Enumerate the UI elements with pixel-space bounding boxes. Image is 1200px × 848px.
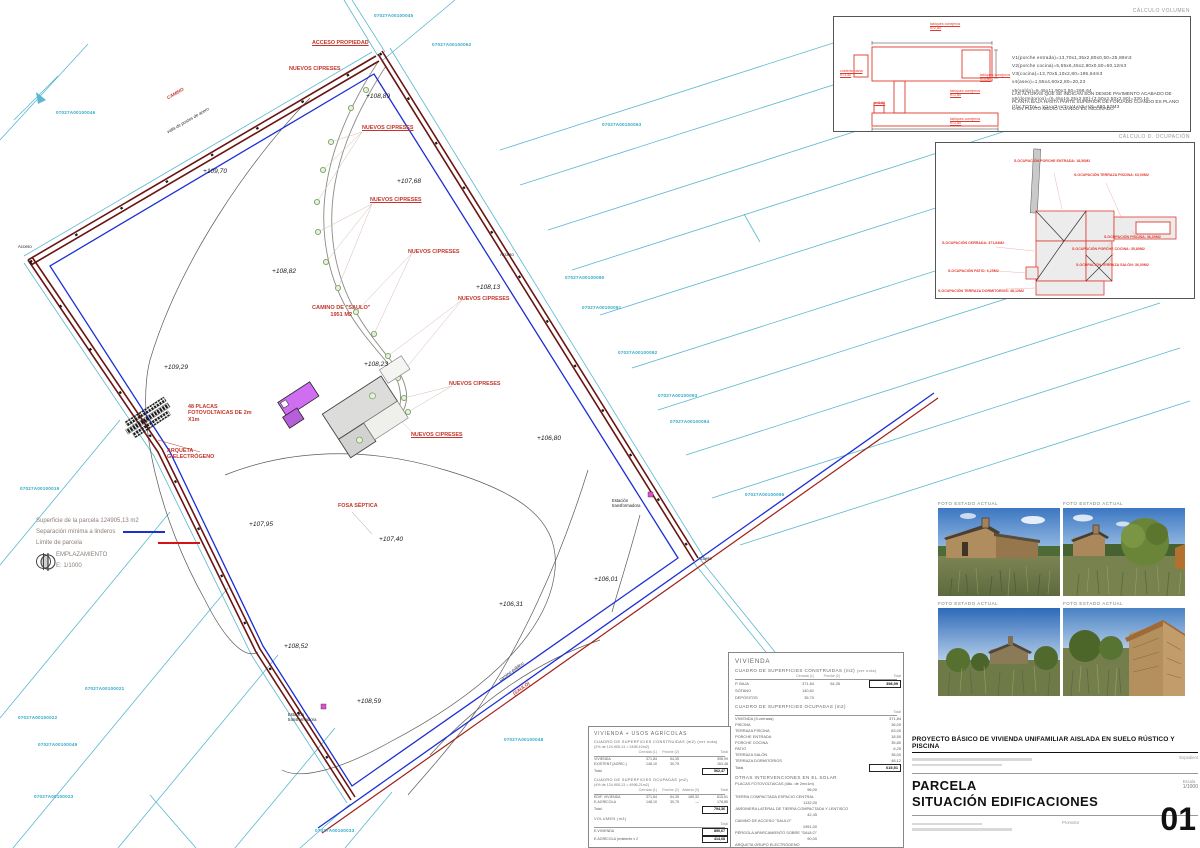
plan-label: CAMINO (166, 87, 185, 101)
mixta-s1-sub: (2% de 124.905,13 = 2498,10m2) (594, 745, 725, 749)
plan-label: FOSA SÉPTICA (338, 503, 378, 509)
plan-label: +109,70 (203, 168, 227, 176)
ocupacion-box-title: CÁLCULO D. OCUPACIÓN (1030, 134, 1190, 140)
expedient-label: Expedient (1179, 755, 1198, 760)
north-section-icon (36, 554, 51, 569)
vivienda-table: VIVIENDA CUADRO DE SUPERFICIES CONSTRUID… (728, 652, 904, 848)
table-row: P. BAJA371,84 54,35 398,99< 1873,57 m2 (735, 680, 897, 688)
limit-label: Límite de parcela (36, 538, 82, 549)
emplazamiento-scale: E: 1/1000 (56, 563, 82, 569)
sheet-name-line1: PARCELA (912, 778, 1098, 794)
occupied-section-title: CUADRO DE SUPERFICIES OCUPADAS (m2) (735, 704, 897, 709)
table-row: Total 794,36< 4996,21 m2 (594, 806, 725, 814)
plan-label: +108,59 (357, 698, 381, 706)
volumen-box-title: CÁLCULO VOLUMEN (1030, 8, 1190, 14)
ocupacion-box: S.OCUPACIÓN PORCHE ENTRADA: 18,50M2S.OCU… (935, 142, 1195, 299)
separation-line-swatch (123, 531, 165, 533)
photo-field-house (938, 608, 1060, 696)
plan-label: NUEVOS CIPRESES (458, 296, 510, 302)
plan-label: valla de postes de acero (166, 106, 210, 134)
plan-label: 48 PLACAS FOTOVOLTAICAS DE 2m X1m (188, 404, 252, 423)
plan-label: 07027A00100022 (18, 715, 57, 721)
table-row: PÉRGOLA APARCAMIENTO SOBRE "SAULO" 90,00 (735, 830, 897, 842)
volumen-diagram-label: tabiques conejeros h=2,80 (950, 89, 980, 98)
ocupacion-label: S.OCUPACIÓN PORCHE COCINA: 35,80M2 (1072, 247, 1145, 251)
table-row: CAMINO DE ACCESO "SAULO" 1951,00 (735, 818, 897, 830)
plan-label: 07027A00100093 (658, 393, 697, 399)
scale-value: 1/1000 (1183, 784, 1198, 790)
table-row: DEPÓSITOS35,70 (735, 695, 897, 701)
legend: Superficie de la parcela 124905,13 m2 Se… (36, 516, 200, 572)
plan-label: Acceso (500, 252, 514, 257)
volumen-calc-line: V2(porche cocina)=5,55x6,45x2,80x0,50=50… (1012, 62, 1149, 70)
photo-farmhouse-tree (1063, 508, 1185, 596)
ocupacion-label: S.OCUPACIÓN PISCINA: 36,00M2 (1104, 235, 1161, 239)
ocupacion-diagram (936, 143, 1194, 298)
plan-label: +106,01 (594, 576, 618, 584)
divider (912, 773, 1198, 774)
plan-label: +109,29 (164, 364, 188, 372)
drawing-sheet: 07027A0010004507027A0010006207027A001000… (0, 0, 1200, 848)
table-row: Total 562,47< 2498,10 m2 (594, 768, 725, 776)
plan-label: 07027A00100045 (374, 13, 413, 19)
plan-label: NUEVOS CIPRESES (408, 249, 460, 255)
other-works-section-title: OTRAS INTERVENCIONES EN EL SOLAR (735, 775, 897, 780)
mixta-table: VIVIENDA + USOS AGRÍCOLAS CUADRO DE SUPE… (588, 726, 731, 848)
promotor-label: Promotor (1062, 820, 1079, 825)
table-row: PLACAS FOTOVOLTAICAS (48u. de 2mx1m) 96,… (735, 781, 897, 793)
mixta-table-title: VIVIENDA + USOS AGRÍCOLAS (594, 731, 725, 737)
plan-label: +108,82 (272, 268, 296, 276)
plan-label: 07027A00100094 (670, 419, 709, 425)
mixta-s3-title: VOLUMEN (m3) (594, 817, 725, 821)
parcel-area-text: Superficie de la parcela 124905,13 m2 (36, 516, 200, 527)
plan-label: NUEVOS CIPRESES (362, 125, 414, 131)
plan-label: 07027A00100090 (565, 275, 604, 281)
plan-label: +107,95 (249, 521, 273, 529)
sheet-name-line2: SITUACIÓN EDIFICACIONES (912, 794, 1098, 810)
architect-info-redacted (912, 758, 1032, 761)
volumen-diagram-label: h=3,50 (874, 101, 885, 105)
table-row: TIERRA COMPACTADA ESPACIO CENTRAL 1132,0… (735, 794, 897, 806)
photo-farmhouse (938, 508, 1060, 596)
plan-label: ARQUETA G.ELECTRÓGENO (167, 448, 214, 461)
plan-label: 07027A00100095 (745, 492, 784, 498)
volumen-box: tabiques conejeros h=2,80cubierta plana … (833, 16, 1191, 132)
mixta-s1-note: (ver nota) (697, 740, 717, 744)
volumen-note: LAS ALTURAS QUE SE INDICAN SON DESDE PAV… (1012, 90, 1180, 113)
plan-label: NUEVOS CIPRESES (449, 381, 501, 387)
mixta-s2-title: CUADRO DE SUPERFICIES OCUPADAS (m2) (594, 778, 725, 782)
plan-label: 07027A00100033 (315, 828, 354, 834)
plan-label: +107,40 (379, 536, 403, 544)
plan-label: CAMINO DE "SAULO" 1951 M2 (312, 305, 370, 318)
ocupacion-label: S.OCUPACIÓN TERRAZA DORMITORIOS: 48,12M2 (938, 289, 1024, 293)
table-row: Total 615,51< 4996,21 m2 (735, 764, 897, 772)
plan-label: 07027A00100046 (56, 110, 95, 116)
plan-label: 07027A00100021 (85, 686, 124, 692)
plan-label: ACCESO PROPIEDAD (312, 40, 369, 46)
volumen-calc-line: V3(cocina)=13,70x5,10x2,80=195,64m3 (1012, 70, 1149, 78)
title-block: PROYECTO BÁSICO DE VIVIENDA UNIFAMILIAR … (912, 736, 1198, 844)
photo-caption: FOTO ESTADO ACTUAL (938, 501, 998, 506)
plan-label: 07027A00100023 (34, 794, 73, 800)
ocupacion-label: S.OCUPACIÓN CERRADA: 371,84M2 (942, 241, 1004, 245)
project-title: PROYECTO BÁSICO DE VIVIENDA UNIFAMILIAR … (912, 736, 1198, 753)
plan-label: 07027A00100019 (20, 486, 59, 492)
photo-caption: FOTO ESTADO ACTUAL (1063, 501, 1123, 506)
plan-label: +107,68 (397, 178, 421, 186)
separation-label: Separación mínima a linderos (36, 527, 115, 538)
volumen-calc-line: v4(aseo)=1,55x4,60x2,80=20,23 (1012, 78, 1149, 86)
plan-label: NUEVOS CIPRESES (370, 197, 422, 203)
ocupacion-label: S.OCUPACIÓN PATIO: 6,25M2 (948, 269, 999, 273)
mixta-s2-sub: (4% de 124.905,13 = 4996,21m2) (594, 783, 725, 787)
plan-label: 07027A00100062 (432, 42, 471, 48)
volumen-diagram-label: tabiques conejeros h=2,80 (950, 117, 980, 126)
plan-label: 07027A00100091 (582, 305, 621, 311)
divider (912, 815, 1198, 816)
plan-label: Acceso (698, 556, 712, 561)
sheet-number: 01 (1160, 801, 1196, 838)
table-row: E.AGRÍCOLA (existente x 2,80) 414,68 (594, 836, 725, 844)
plan-label: +106,80 (537, 435, 561, 443)
photo-stone-wall (1063, 608, 1185, 696)
plan-label: 07027A00100092 (618, 350, 657, 356)
constructed-section-title: CUADRO DE SUPERFICIES CONSTRUIDAS (m2) (735, 668, 855, 673)
emplazamiento-label: EMPLAZAMIENTO (56, 552, 107, 558)
volumen-diagram-label: tabiques conejeros h=2,80 (980, 73, 1010, 82)
plan-label: +108,13 (476, 284, 500, 292)
plan-label: Acceso (18, 244, 32, 249)
plan-label: 07027A00100048 (504, 737, 543, 743)
plan-label: +106,31 (499, 601, 523, 609)
volumen-calc-line: V1(porche entrada)=13,70x1,35x2,80x0,50=… (1012, 54, 1149, 62)
constructed-note: (ver nota) (857, 669, 877, 673)
plan-label: +108,52 (284, 643, 308, 651)
ocupacion-label: S.OCUPACIÓN TERRAZA PISCINA: 63,00M2 (1074, 173, 1149, 177)
plan-label: 07027A00100049 (38, 742, 77, 748)
plan-label: Estación transformadora (288, 712, 316, 722)
table-row: E.VIVIENDA 890,67 (594, 828, 725, 836)
vivienda-table-title: VIVIENDA (735, 658, 897, 665)
table-row: ARQUETA GRUPO ELECTRÓGENO 1,00 (735, 842, 897, 848)
plan-label: NUEVOS CIPRESES (289, 66, 341, 72)
plan-label: (SAULO) (512, 681, 531, 697)
mixta-s1-title: CUADRO DE SUPERFICIES CONSTRUIDAS (m2) (594, 740, 696, 744)
plan-label: 07027A00100063 (602, 122, 641, 128)
photo-caption: FOTO ESTADO ACTUAL (938, 601, 998, 606)
table-row: JARDINERA LATERAL DE TIERRA COMPACTADA Y… (735, 806, 897, 818)
photo-caption: FOTO ESTADO ACTUAL (1063, 601, 1123, 606)
limit-line-swatch (158, 542, 200, 544)
volumen-diagram-label: cubierta plana h=3,50 (840, 69, 863, 78)
plan-label: camino público (498, 661, 525, 682)
ocupacion-label: S.OCUPACIÓN PORCHE ENTRADA: 18,50M2 (1014, 159, 1090, 163)
plan-label: +108,89 (366, 93, 390, 101)
plan-label: NUEVOS CIPRESES (411, 432, 463, 438)
plan-label: +108,23 (364, 361, 388, 369)
architect-info-redacted (912, 764, 1002, 767)
volumen-diagram-label: tabiques conejeros h=2,80 (930, 22, 960, 31)
promotor-info-redacted (912, 828, 1012, 831)
ocupacion-label: S.OCUPACIÓN TERRAZA SALÓN: 36,00M2 (1076, 263, 1149, 267)
promotor-info-redacted (912, 823, 982, 826)
plan-label: Estación transformadora (612, 498, 640, 508)
